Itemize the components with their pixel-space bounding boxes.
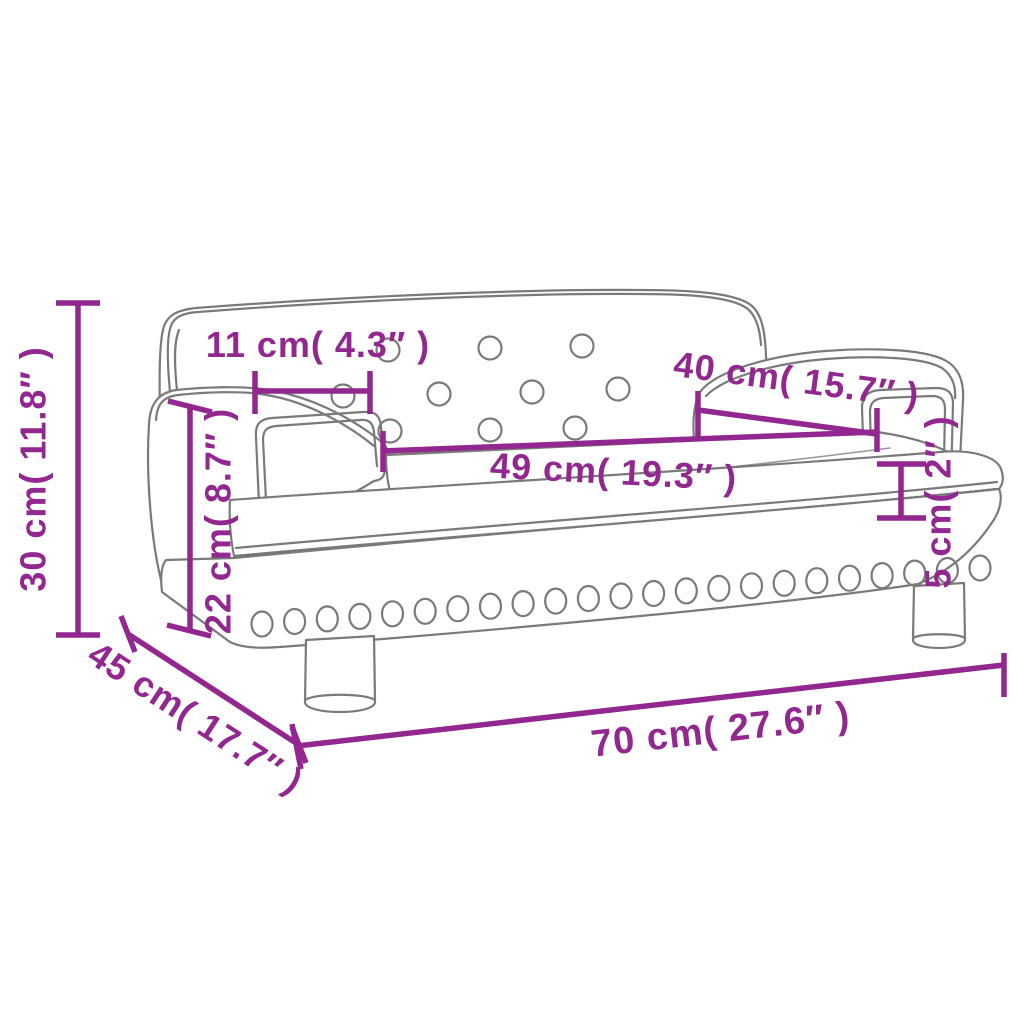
leg-left-outline (305, 636, 375, 712)
sofa-leg-front-left (305, 636, 375, 712)
sofa-dimension-drawing: 30 cm( 11.8″ ) 11 cm( 4.3″ ) 40 cm( 15.7… (0, 0, 1024, 1024)
dimension-label: 11 cm( 4.3″ ) (206, 324, 430, 365)
dimension-diagram: 30 cm( 11.8″ ) 11 cm( 4.3″ ) 40 cm( 15.7… (0, 0, 1024, 1024)
dimension-label: 5 cm( 2″ ) (918, 415, 959, 588)
leg-right-outline (913, 583, 965, 648)
dimension-height: 30 cm( 11.8″ ) (13, 303, 100, 635)
nailhead-stud (970, 556, 991, 581)
dimension-width: 70 cm( 27.6″ ) (292, 653, 1004, 769)
dimension-label: 22 cm( 8.7″ ) (198, 408, 239, 634)
dimension-label: 30 cm( 11.8″ ) (13, 346, 54, 591)
dimension-label: 70 cm( 27.6″ ) (589, 694, 852, 765)
dimension-label: 45 cm( 17.7″ ) (81, 633, 311, 802)
sofa-leg-front-right (913, 583, 965, 648)
